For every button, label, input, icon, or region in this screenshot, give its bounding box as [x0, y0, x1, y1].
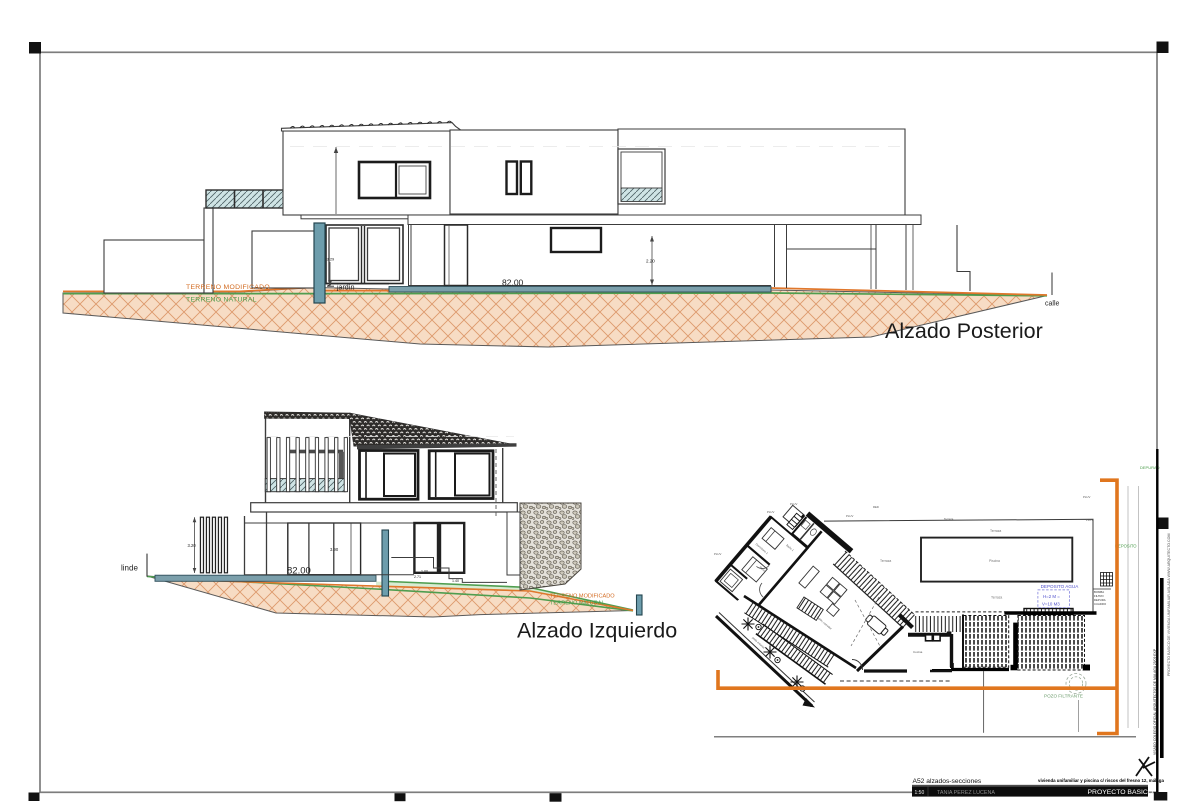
svg-text:vivienda unifamiliar y piscina: vivienda unifamiliar y piscina c/ riscos…: [1038, 778, 1164, 783]
svg-text:PLUV: PLUV: [846, 514, 853, 518]
svg-text:1:50: 1:50: [915, 790, 925, 796]
svg-text:PLUV: PLUV: [1083, 495, 1090, 499]
svg-text:Piscina: Piscina: [989, 559, 1000, 563]
svg-text:H=2 M =: H=2 M =: [1043, 594, 1060, 599]
svg-text:82.00: 82.00: [502, 278, 524, 288]
svg-text:PLUV: PLUV: [1086, 518, 1093, 522]
svg-text:PLUV: PLUV: [790, 502, 797, 506]
svg-text:A52 alzados-secciones: A52 alzados-secciones: [913, 778, 982, 785]
svg-text:3.20: 3.20: [188, 543, 197, 548]
svg-text:VISADO COLEGIO OFICIAL ARQUITE: VISADO COLEGIO OFICIAL ARQUITECTOS DE MA…: [1153, 648, 1157, 755]
svg-text:PLUV: PLUV: [714, 552, 721, 556]
svg-text:linde: linde: [121, 564, 138, 573]
svg-text:jardín: jardín: [336, 285, 355, 292]
svg-text:82.00: 82.00: [287, 566, 311, 577]
svg-text:TANIA PEREZ LUCENA: TANIA PEREZ LUCENA: [937, 790, 995, 796]
svg-text:Cocina: Cocina: [913, 650, 923, 654]
svg-text:2.20: 2.20: [646, 259, 655, 264]
svg-text:Alzado Posterior: Alzado Posterior: [885, 319, 1043, 343]
svg-text:DEPOSITO AGUA: DEPOSITO AGUA: [1041, 584, 1080, 589]
svg-text:PROYECTO BASICO: PROYECTO BASICO: [1088, 789, 1154, 796]
svg-text:calle: calle: [1045, 301, 1060, 308]
svg-text:TERRENO MODIFICADO: TERRENO MODIFICADO: [186, 284, 270, 291]
svg-text:Alzado Izquierdo: Alzado Izquierdo: [517, 619, 677, 643]
svg-text:CUADRO: CUADRO: [1094, 602, 1107, 606]
svg-text:TERRENO MODIFICADO: TERRENO MODIFICADO: [550, 594, 615, 600]
svg-text:TERRENO NATURAL: TERRENO NATURAL: [186, 297, 257, 304]
svg-text:Terraza: Terraza: [991, 596, 1002, 600]
svg-text:Terraza: Terraza: [944, 517, 954, 521]
svg-text:Terraza: Terraza: [880, 559, 891, 563]
svg-text:1.00: 1.00: [421, 570, 428, 574]
svg-text:1.40: 1.40: [452, 579, 459, 583]
svg-text:3.29: 3.29: [327, 257, 336, 262]
svg-text:PLUV: PLUV: [767, 510, 774, 514]
svg-text:PROYECTO BASICO DE VIVIENDA UN: PROYECTO BASICO DE VIVIENDA UNIFAMILIAR …: [1167, 534, 1171, 676]
svg-text:2.71: 2.71: [414, 575, 421, 579]
svg-text:POZO FILTRANTE: POZO FILTRANTE: [1044, 694, 1083, 699]
svg-text:V=10 M3: V=10 M3: [1042, 602, 1060, 607]
svg-text:RED: RED: [873, 505, 879, 509]
svg-text:3.90: 3.90: [330, 547, 339, 552]
svg-text:Terraza: Terraza: [990, 529, 1001, 533]
svg-text:TERRENO NATURAL: TERRENO NATURAL: [550, 600, 605, 606]
